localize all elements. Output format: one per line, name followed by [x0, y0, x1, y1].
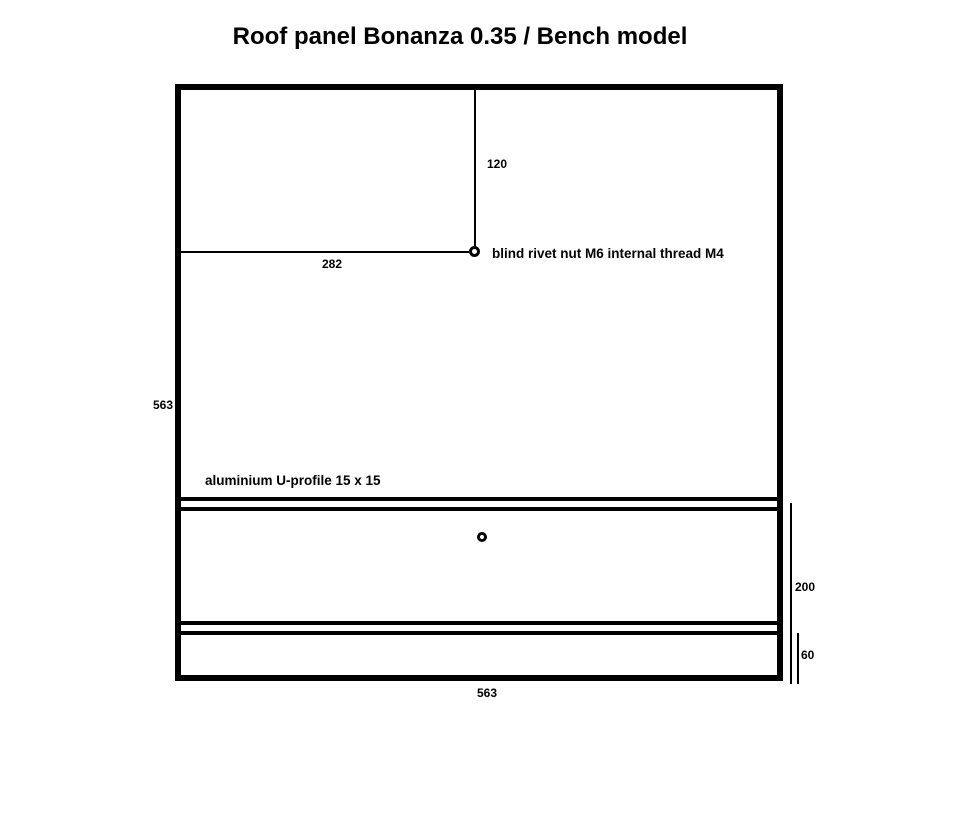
panel-outline	[175, 84, 783, 681]
annotation-u-profile: aluminium U-profile 15 x 15	[205, 473, 381, 488]
dimension-label-rivet-from-left: 282	[322, 257, 342, 271]
dimension-line-60	[797, 633, 799, 684]
u-profile-lower-line-1	[181, 621, 777, 625]
u-profile-upper-line-2	[181, 507, 777, 511]
drawing-canvas: Roof panel Bonanza 0.35 / Bench model 12…	[0, 0, 956, 824]
dimension-line-200	[790, 503, 792, 684]
rivet-offset-left-leader-line	[181, 251, 469, 253]
rivet-offset-top-leader-line	[474, 90, 476, 248]
rivet-nut-marker-top	[469, 246, 480, 257]
annotation-rivet-nut: blind rivet nut M6 internal thread M4	[492, 246, 724, 261]
dimension-label-panel-width: 563	[477, 686, 497, 700]
u-profile-upper-line-1	[181, 497, 777, 501]
dimension-label-bench-section: 200	[795, 580, 815, 594]
u-profile-lower-line-2	[181, 631, 777, 635]
dimension-label-panel-height: 563	[146, 398, 173, 412]
drawing-title: Roof panel Bonanza 0.35 / Bench model	[0, 23, 920, 51]
dimension-label-bottom-strip: 60	[801, 648, 814, 662]
rivet-nut-marker-bottom	[477, 532, 487, 542]
dimension-label-rivet-from-top: 120	[487, 157, 507, 171]
